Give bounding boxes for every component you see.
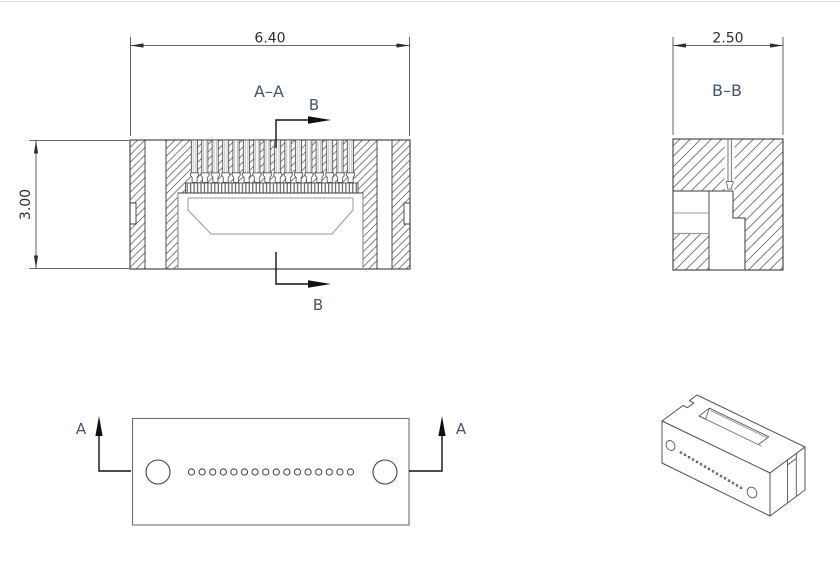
pin-hole xyxy=(284,469,290,475)
mounting-hole-right xyxy=(373,460,397,484)
section-marker-a-right: A xyxy=(409,416,467,471)
b-top-label: B xyxy=(309,96,319,114)
b-top-arrow xyxy=(308,116,331,123)
dim-640-value: 6.40 xyxy=(254,31,285,47)
section-marker-a-left: A xyxy=(76,416,131,471)
dim-250-arrow-left xyxy=(673,43,686,47)
pin-hole xyxy=(252,469,258,475)
pin-hole xyxy=(188,469,194,475)
dim-250-arrow-right xyxy=(770,43,783,47)
view-plan: A A xyxy=(76,416,467,525)
a-right-arrow xyxy=(438,416,445,436)
pin-hole xyxy=(316,469,322,475)
aa-pin-channels xyxy=(189,140,355,173)
mounting-hole-left xyxy=(146,460,170,484)
plan-outline xyxy=(133,419,410,526)
dim-300-value: 3.00 xyxy=(18,189,34,220)
view-section-aa: B B A–A xyxy=(130,82,410,314)
dim-300-arrow-top xyxy=(34,141,38,154)
pin-hole xyxy=(294,469,300,475)
a-left-line xyxy=(99,435,131,471)
pin-hole xyxy=(347,469,353,475)
dim-250-value: 2.50 xyxy=(712,31,743,47)
aa-contact-ticks xyxy=(186,183,359,193)
a-right-label: A xyxy=(456,420,467,438)
b-bottom-arrow xyxy=(308,280,331,287)
pin-hole xyxy=(337,469,343,475)
dim-aa-height: 3.00 xyxy=(18,141,129,269)
pin-hole xyxy=(199,469,205,475)
aa-pin-tips xyxy=(189,173,355,184)
label-section-aa: A–A xyxy=(254,82,284,101)
a-right-line xyxy=(409,435,442,471)
engineering-drawing: B B A–A 6.40 3.00 B xyxy=(0,0,840,575)
pin-hole xyxy=(210,469,216,475)
dim-300-arrow-bottom xyxy=(34,256,38,269)
view-section-bb: B–B xyxy=(673,81,783,270)
dim-640-arrow-right xyxy=(397,43,410,47)
pin-hole xyxy=(326,469,332,475)
a-left-arrow xyxy=(95,416,102,436)
pin-hole xyxy=(220,469,226,475)
pin-hole xyxy=(273,469,279,475)
bb-left-pocket xyxy=(674,191,710,234)
label-section-bb: B–B xyxy=(712,81,742,100)
drawing-canvas: B B A–A 6.40 3.00 B xyxy=(0,0,840,575)
a-left-label: A xyxy=(76,420,87,438)
pin-hole xyxy=(263,469,269,475)
view-isometric xyxy=(662,395,805,516)
pin-hole xyxy=(241,469,247,475)
pin-hole xyxy=(305,469,311,475)
b-bottom-label: B xyxy=(313,296,323,314)
pin-hole xyxy=(231,469,237,475)
dim-300-lines xyxy=(29,141,129,269)
dim-640-arrow-left xyxy=(131,43,144,47)
